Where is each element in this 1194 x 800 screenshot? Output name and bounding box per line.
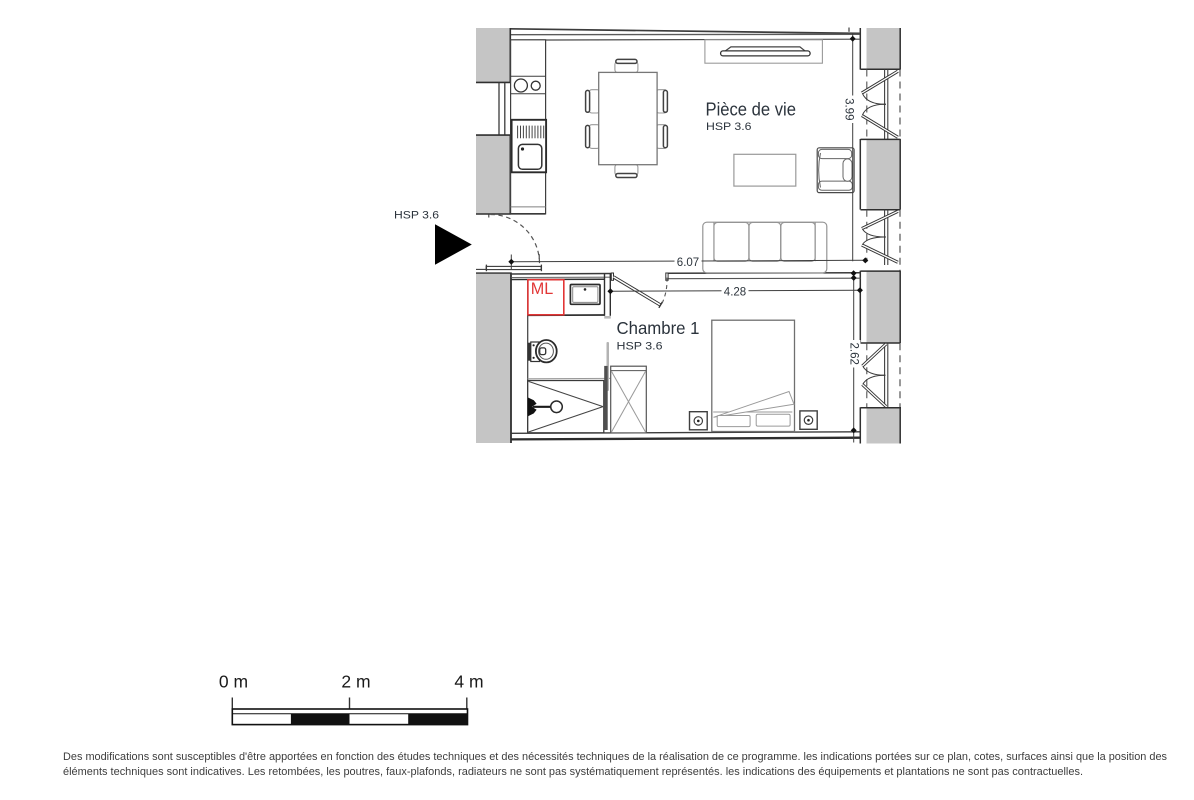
svg-text:Pièce de vie: Pièce de vie bbox=[706, 98, 797, 119]
svg-text:éléments techniques sont indic: éléments techniques sont indicatives. Le… bbox=[63, 766, 1083, 778]
svg-text:4 m: 4 m bbox=[454, 672, 483, 692]
svg-text:HSP 3.6: HSP 3.6 bbox=[394, 209, 439, 221]
svg-text:ML: ML bbox=[531, 280, 554, 298]
svg-text:HSP 3.6: HSP 3.6 bbox=[706, 121, 752, 133]
svg-text:2.62: 2.62 bbox=[848, 343, 860, 365]
svg-text:4.28: 4.28 bbox=[724, 286, 746, 298]
svg-text:HSP 3.6: HSP 3.6 bbox=[617, 341, 663, 353]
svg-text:Chambre 1: Chambre 1 bbox=[617, 318, 700, 338]
svg-text:6.07: 6.07 bbox=[677, 257, 699, 269]
svg-text:3.99: 3.99 bbox=[842, 98, 854, 120]
svg-text:2 m: 2 m bbox=[341, 672, 370, 692]
svg-text:Des modifications sont suscept: Des modifications sont susceptibles d'êt… bbox=[63, 751, 1167, 763]
svg-text:0 m: 0 m bbox=[219, 672, 248, 692]
